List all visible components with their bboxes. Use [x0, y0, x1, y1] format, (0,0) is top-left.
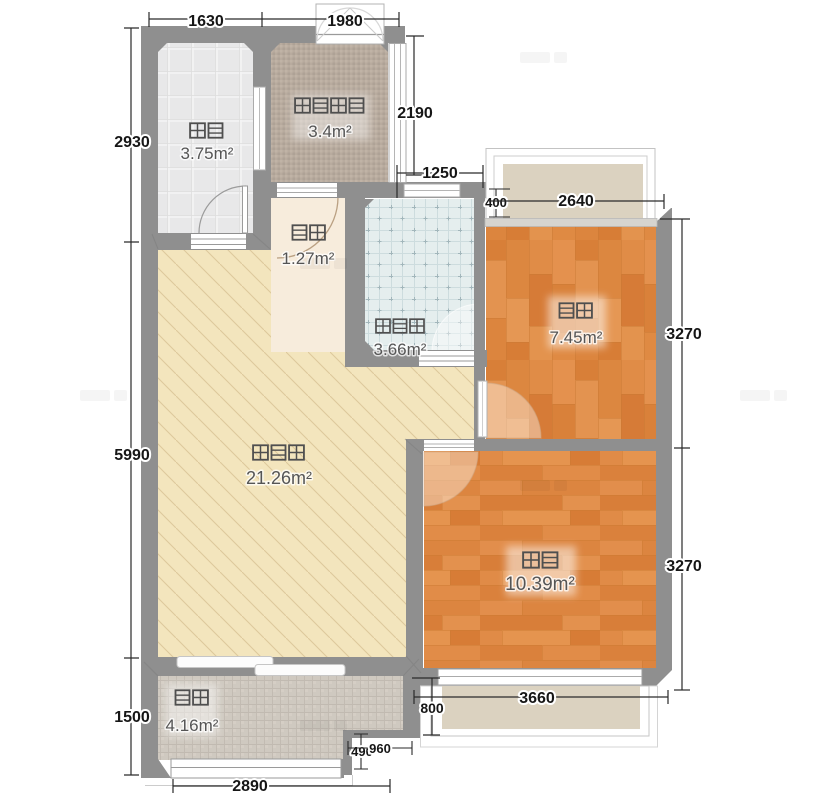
svg-text:2190: 2190 — [397, 105, 433, 122]
svg-text:10.39m²: 10.39m² — [505, 574, 575, 595]
svg-text:2890: 2890 — [232, 778, 268, 795]
svg-text:5990: 5990 — [114, 447, 150, 464]
svg-text:3270: 3270 — [666, 326, 702, 343]
svg-text:3270: 3270 — [666, 558, 702, 575]
svg-text:2640: 2640 — [558, 193, 594, 210]
svg-text:3660: 3660 — [519, 690, 555, 707]
svg-text:1500: 1500 — [114, 709, 150, 726]
svg-text:21.26m²: 21.26m² — [246, 468, 312, 488]
svg-text:3.66m²: 3.66m² — [374, 340, 427, 359]
svg-text:400: 400 — [485, 195, 507, 210]
svg-text:4.16m²: 4.16m² — [166, 716, 219, 735]
svg-text:2930: 2930 — [114, 134, 150, 151]
svg-text:800: 800 — [420, 700, 444, 716]
svg-text:1250: 1250 — [422, 165, 458, 182]
svg-text:3.75m²: 3.75m² — [181, 144, 234, 163]
svg-text:1980: 1980 — [327, 13, 363, 30]
svg-text:7.45m²: 7.45m² — [550, 328, 603, 347]
svg-text:960: 960 — [369, 741, 391, 756]
svg-text:3.4m²: 3.4m² — [308, 122, 352, 141]
svg-text:1630: 1630 — [188, 13, 224, 30]
